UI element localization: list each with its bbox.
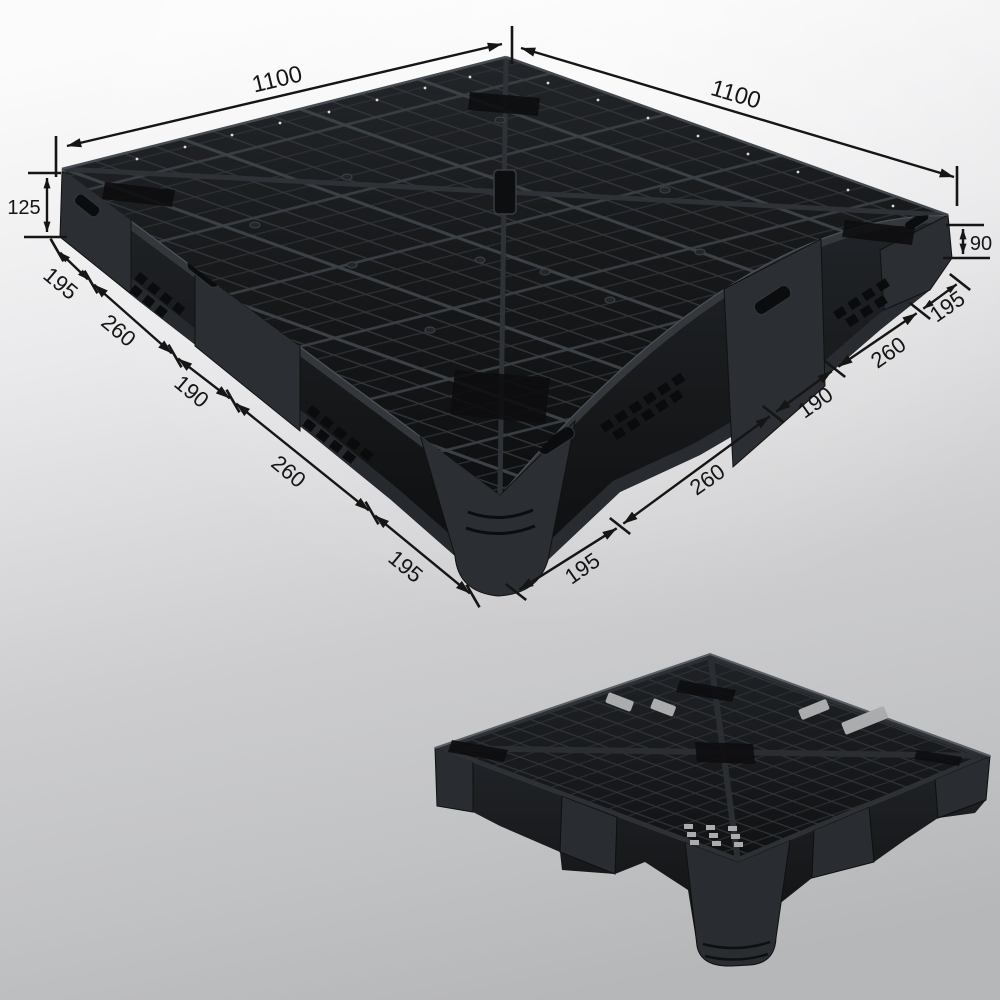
product-dimension-figure: 1100 1100 125 90 [0, 0, 1000, 1000]
drain-holes [684, 824, 743, 847]
underside-center-pocket [695, 742, 755, 764]
pallet-figure-canvas: 1100 1100 125 90 [0, 0, 1000, 1000]
dim-label-right-height: 90 [970, 233, 992, 255]
dim-label-left-height: 125 [7, 197, 40, 219]
deck-center-hub [494, 170, 516, 214]
